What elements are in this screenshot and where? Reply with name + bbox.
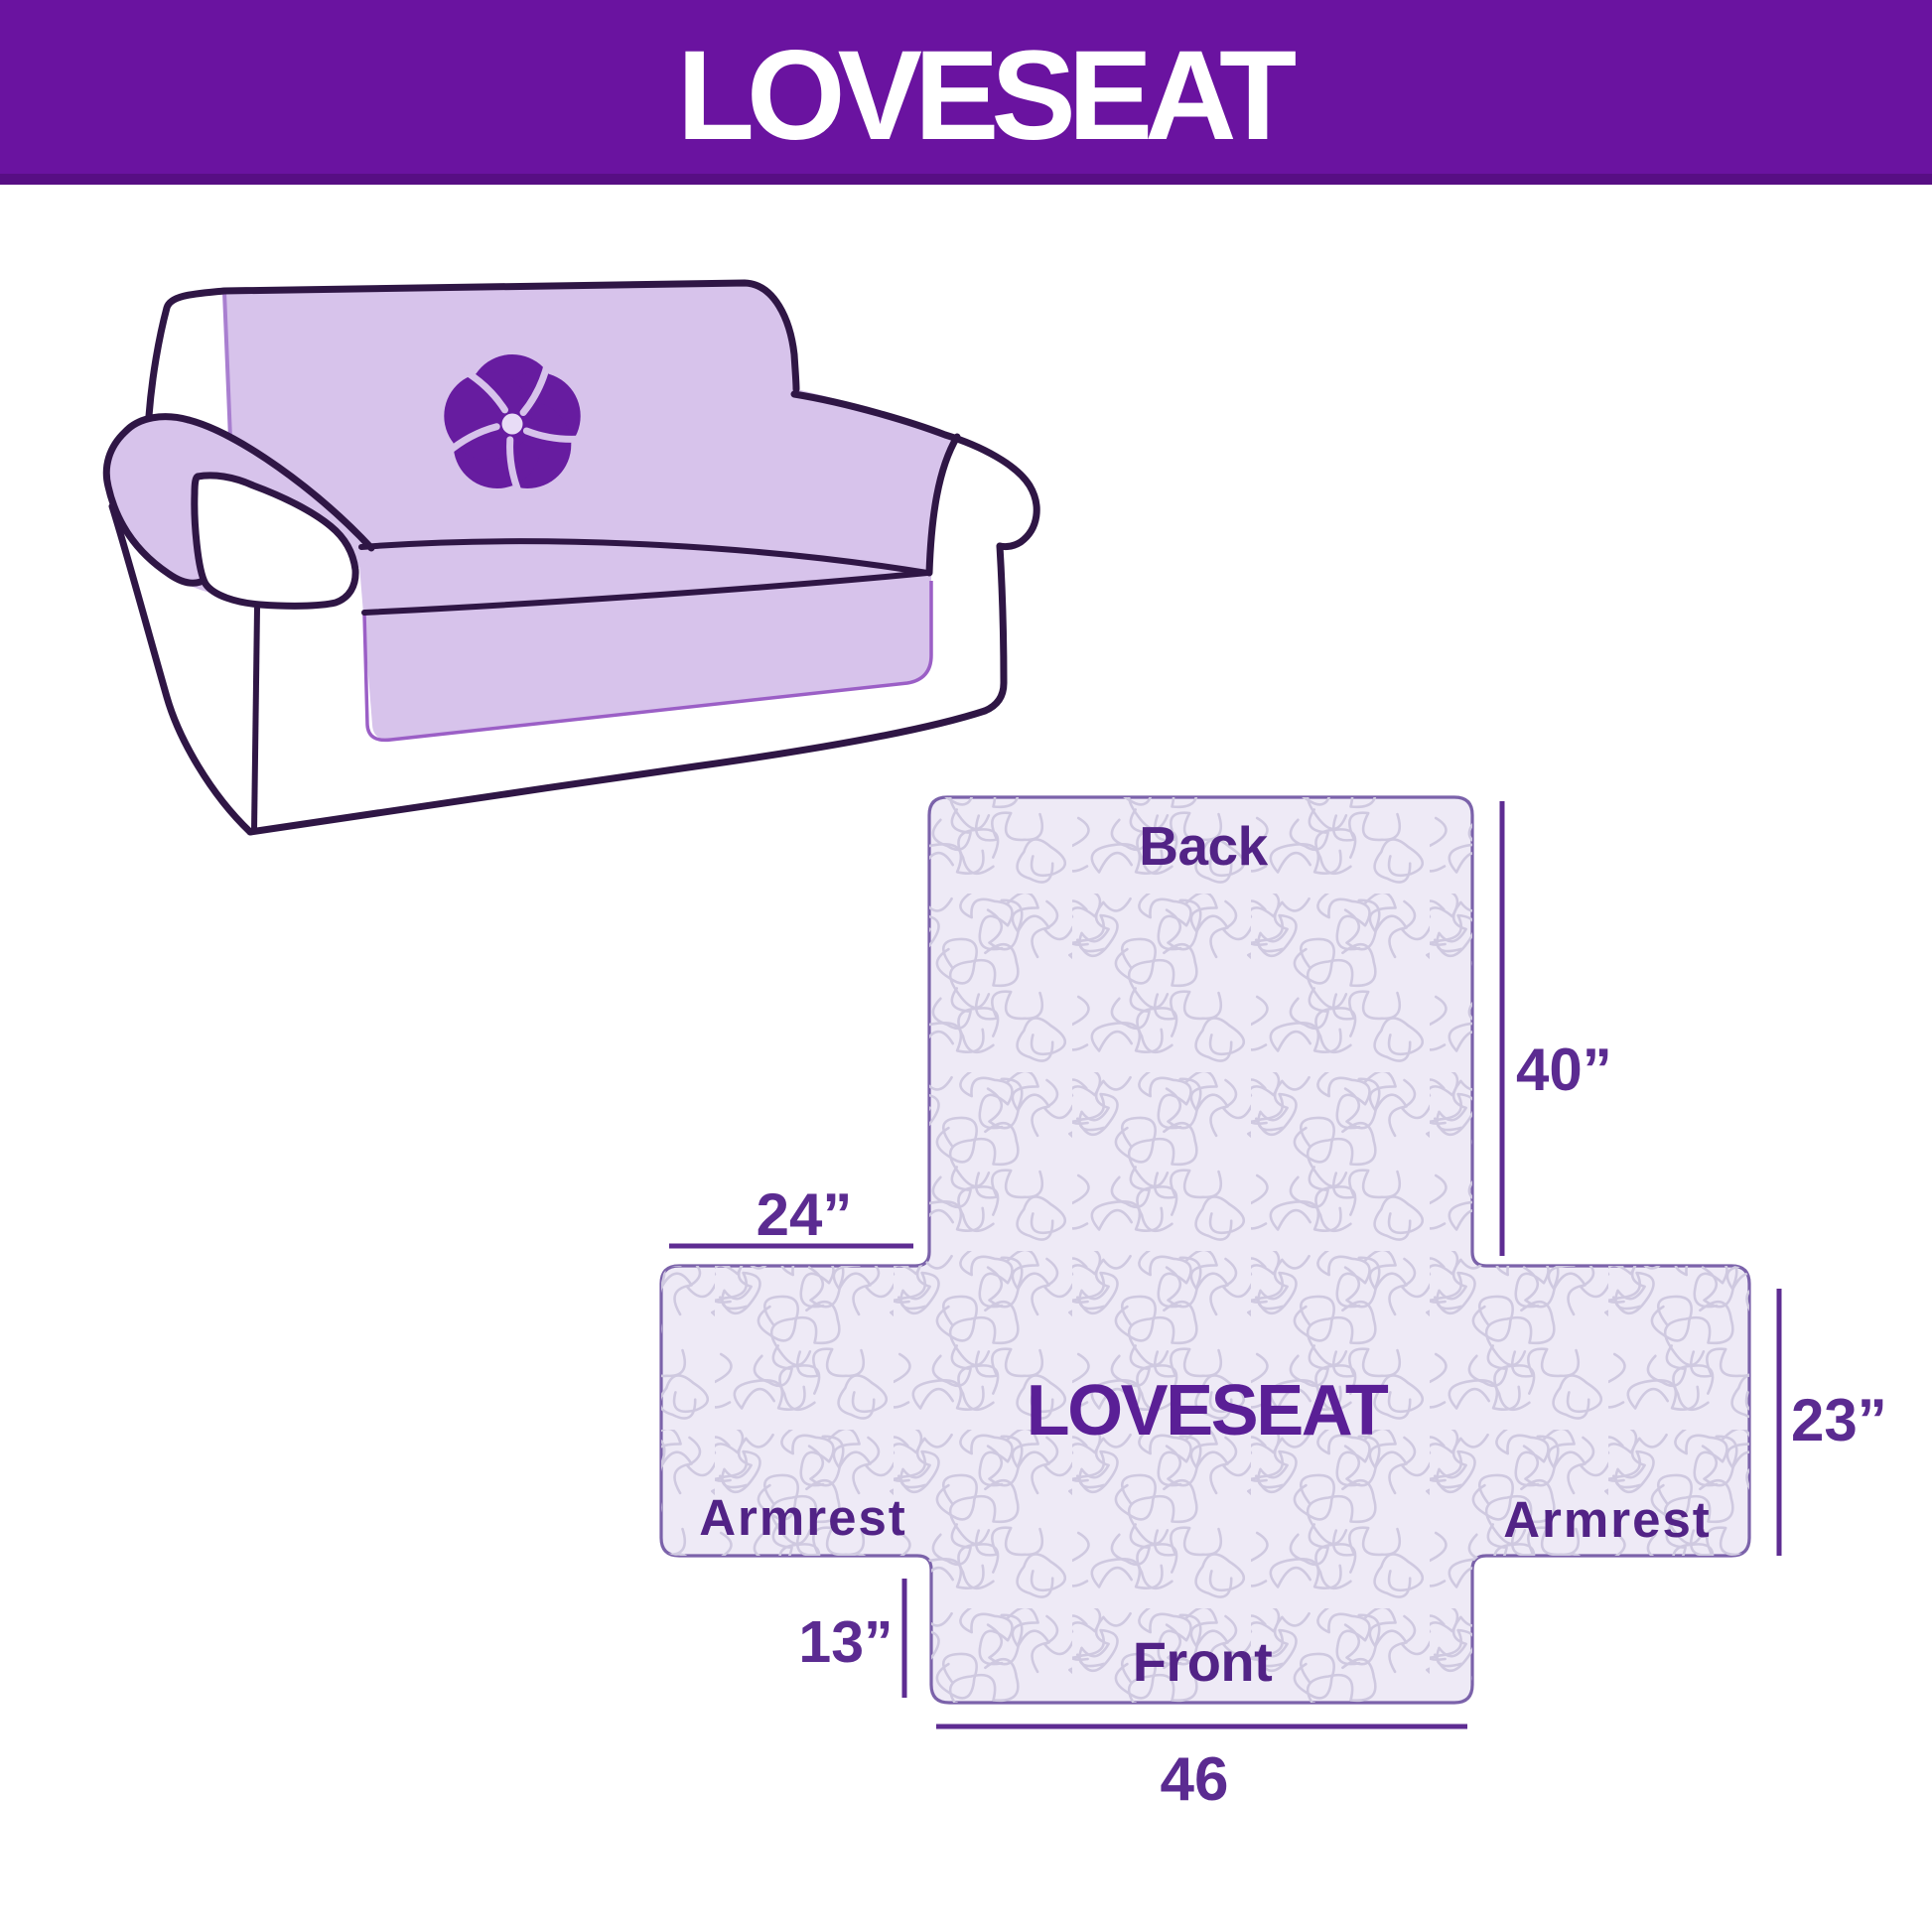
svg-text:24”: 24” xyxy=(757,1181,853,1248)
svg-text:46: 46 xyxy=(1161,1745,1229,1814)
svg-text:LOVESEAT: LOVESEAT xyxy=(677,25,1296,167)
svg-text:40”: 40” xyxy=(1516,1036,1612,1103)
svg-text:Back: Back xyxy=(1139,815,1268,877)
svg-text:Armrest: Armrest xyxy=(1503,1491,1712,1548)
svg-text:LOVESEAT: LOVESEAT xyxy=(1027,1371,1389,1450)
svg-text:Front: Front xyxy=(1133,1630,1273,1693)
svg-text:13”: 13” xyxy=(798,1609,893,1675)
svg-text:Armrest: Armrest xyxy=(699,1489,907,1546)
svg-text:23”: 23” xyxy=(1791,1387,1887,1453)
